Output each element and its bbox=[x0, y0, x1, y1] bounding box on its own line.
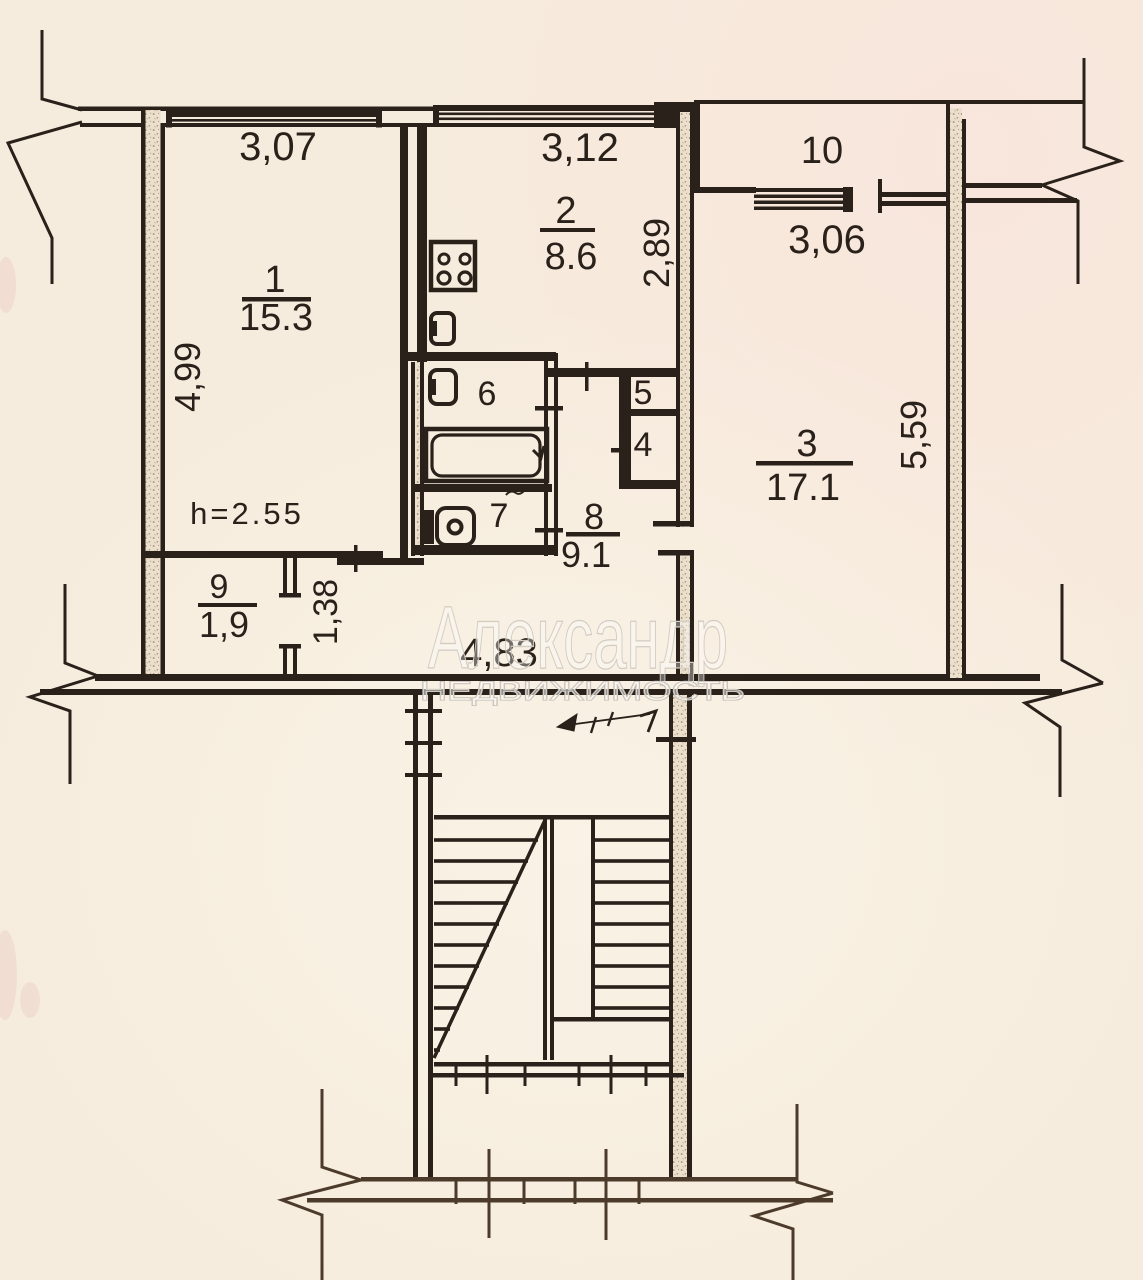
svg-text:15.3: 15.3 bbox=[239, 297, 313, 339]
svg-text:4: 4 bbox=[634, 426, 653, 464]
svg-text:4,99: 4,99 bbox=[167, 342, 208, 412]
svg-text:8.6: 8.6 bbox=[545, 236, 598, 278]
svg-text:3,12: 3,12 bbox=[541, 126, 619, 170]
svg-text:3: 3 bbox=[796, 423, 817, 465]
svg-text:2,89: 2,89 bbox=[636, 218, 677, 288]
svg-text:17.1: 17.1 bbox=[766, 467, 840, 509]
svg-text:5,59: 5,59 bbox=[893, 400, 934, 470]
svg-text:2: 2 bbox=[555, 190, 576, 232]
svg-text:9.1: 9.1 bbox=[561, 534, 611, 575]
svg-text:3,06: 3,06 bbox=[788, 218, 866, 262]
svg-text:7: 7 bbox=[490, 497, 509, 535]
svg-text:Александр: Александр bbox=[428, 588, 728, 687]
svg-text:8: 8 bbox=[584, 496, 604, 537]
svg-text:3,07: 3,07 bbox=[239, 125, 317, 169]
svg-text:6: 6 bbox=[478, 375, 497, 413]
svg-text:9: 9 bbox=[210, 568, 229, 606]
svg-text:1,38: 1,38 bbox=[307, 579, 345, 645]
svg-text:1: 1 bbox=[264, 259, 285, 301]
svg-text:НЕДВИЖИМОСТЬ: НЕДВИЖИМОСТЬ bbox=[420, 676, 745, 706]
svg-text:1,9: 1,9 bbox=[199, 604, 249, 645]
svg-text:h=2.55: h=2.55 bbox=[190, 496, 304, 531]
svg-text:10: 10 bbox=[801, 130, 843, 172]
svg-text:5: 5 bbox=[634, 374, 653, 412]
